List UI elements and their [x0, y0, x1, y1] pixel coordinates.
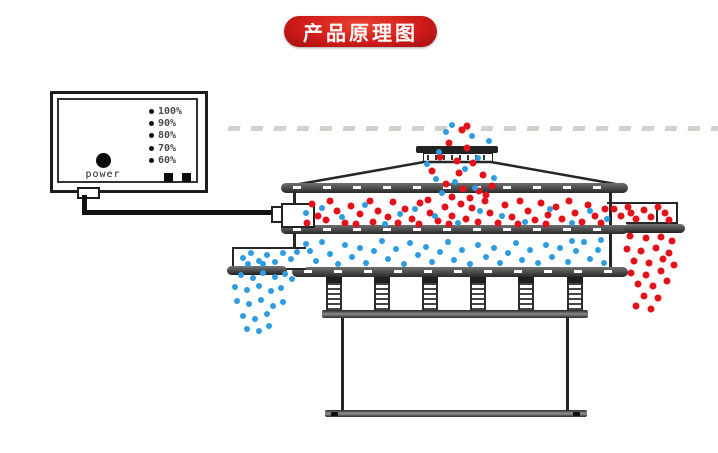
lower-chamber-fine-particle [505, 250, 511, 256]
inlet-stream-coarse-particle [467, 195, 474, 202]
clamp-band-top [281, 183, 628, 193]
spring-coil [518, 283, 534, 310]
upper-chamber-coarse-particle [538, 200, 545, 207]
base-wall-right [566, 318, 569, 410]
upper-chamber-fine-particle [587, 208, 593, 214]
lower-sieve-wall-right [609, 233, 612, 268]
fines-discharge-fine-particle [244, 287, 250, 293]
upper-chamber-coarse-particle [525, 208, 532, 215]
level-label: 90% [158, 118, 176, 129]
spring-coil [374, 283, 390, 310]
lower-chamber-fine-particle [557, 245, 563, 251]
indicator-square [164, 173, 173, 182]
spring-coil [470, 283, 486, 310]
oversize-discharge-coarse-particle [666, 250, 673, 257]
upper-chamber-coarse-particle [334, 208, 341, 215]
indicator-squares [164, 173, 191, 182]
inlet-stream-fine-particle [486, 138, 492, 144]
lower-chamber-fine-particle [437, 249, 443, 255]
support-spring [567, 277, 583, 310]
oversize-discharge-coarse-particle [628, 270, 635, 277]
upper-chamber-coarse-particle [566, 198, 573, 205]
oversize-discharge-coarse-particle [660, 256, 667, 263]
upper-chamber-coarse-particle [427, 210, 434, 217]
lower-chamber-fine-particle [313, 258, 319, 264]
lower-chamber-fine-particle [415, 252, 421, 258]
lower-chamber-fine-particle [342, 242, 348, 248]
upper-chamber-coarse-particle [458, 201, 465, 208]
upper-chamber-coarse-particle [417, 200, 424, 207]
lower-chamber-fine-particle [595, 247, 601, 253]
title-banner: 产品原理图 [284, 16, 437, 47]
oversize-discharge-coarse-particle [658, 268, 665, 275]
oversize-discharge-coarse-particle [671, 262, 678, 269]
fines-discharge-fine-particle [258, 297, 264, 303]
upper-chamber-coarse-particle [435, 218, 442, 225]
level-row: 60% [149, 156, 201, 166]
lower-chamber-fine-particle [483, 254, 489, 260]
lower-chamber-fine-particle [569, 238, 575, 244]
upper-chamber-coarse-particle [409, 216, 416, 223]
fines-discharge-fine-particle [252, 316, 258, 322]
level-label: 60% [158, 155, 176, 166]
upper-chamber-coarse-particle [482, 198, 489, 205]
clamp-band-middle [281, 225, 628, 234]
lower-chamber-fine-particle [371, 248, 377, 254]
clamp-band-bottom [292, 267, 628, 277]
upper-chamber-coarse-particle [502, 202, 509, 209]
oversize-discharge-coarse-particle [627, 233, 634, 240]
lower-chamber-fine-particle [543, 242, 549, 248]
oversize-outlet-spout [607, 202, 678, 204]
support-spring [374, 277, 390, 310]
transducer-connector [281, 203, 315, 228]
upper-chamber-coarse-particle [487, 210, 494, 217]
oversize-discharge-coarse-particle [646, 260, 653, 267]
fines-discharge-fine-particle [264, 311, 270, 317]
feed-inlet-cap [416, 146, 498, 153]
upper-chamber-fine-particle [339, 214, 345, 220]
lower-chamber-fine-particle [429, 259, 435, 265]
oversize-spout-coarse-particle [628, 210, 635, 217]
upper-chamber-coarse-particle [532, 217, 539, 224]
indicator-square [182, 173, 191, 182]
ultrasonic-control-box: power 100%90%80%70%60% [50, 91, 208, 193]
support-spring [518, 277, 534, 310]
fines-discharge-fine-particle [234, 298, 240, 304]
oversize-discharge-coarse-particle [631, 258, 638, 265]
level-bullet-icon [149, 158, 154, 163]
level-bullet-icon [149, 146, 154, 151]
support-spring [470, 277, 486, 310]
oversize-discharge-coarse-particle [664, 278, 671, 285]
lower-chamber-fine-particle [423, 244, 429, 250]
oversize-discharge-coarse-particle [648, 306, 655, 313]
power-label: power [73, 169, 133, 180]
level-label: 80% [158, 130, 176, 141]
lower-chamber-fine-particle [385, 256, 391, 262]
upper-chamber-fine-particle [412, 206, 418, 212]
upper-chamber-coarse-particle [357, 211, 364, 218]
upper-chamber-coarse-particle [323, 217, 330, 224]
spring-coil [567, 283, 583, 310]
fines-discharge-fine-particle [246, 301, 252, 307]
oversize-discharge-coarse-particle [643, 235, 650, 242]
lower-chamber-fine-particle [475, 242, 481, 248]
oversize-discharge-coarse-particle [650, 283, 657, 290]
fines-discharge-fine-particle [280, 299, 286, 305]
oversize-spout-coarse-particle [648, 214, 655, 221]
oversize-discharge-coarse-particle [635, 281, 642, 288]
inlet-stream-coarse-particle [449, 194, 456, 201]
upper-chamber-coarse-particle [442, 204, 449, 211]
base-wall-left [341, 318, 344, 410]
lower-chamber-fine-particle [535, 260, 541, 266]
fines-discharge-fine-particle [266, 323, 272, 329]
inlet-stream-fine-particle [469, 133, 475, 139]
lower-chamber-fine-particle [513, 240, 519, 246]
upper-chamber-coarse-particle [469, 205, 476, 212]
lower-chamber-fine-particle [451, 257, 457, 263]
fines-discharge-fine-particle [250, 275, 256, 281]
lower-chamber-fine-particle [587, 256, 593, 262]
level-row: 70% [149, 143, 201, 153]
oversize-discharge-coarse-particle [669, 238, 676, 245]
lower-chamber-fine-particle [549, 254, 555, 260]
upper-chamber-coarse-particle [572, 210, 579, 217]
lower-chamber-fine-particle [497, 260, 503, 266]
upper-chamber-coarse-particle [367, 198, 374, 205]
fines-discharge-fine-particle [268, 288, 274, 294]
upper-chamber-coarse-particle [449, 213, 456, 220]
lower-chamber-fine-particle [379, 238, 385, 244]
fines-discharge-fine-particle [289, 276, 295, 282]
upper-chamber-coarse-particle [602, 206, 609, 213]
fines-discharge-fine-particle [256, 283, 262, 289]
lower-chamber-fine-particle [327, 251, 333, 257]
upper-chamber-coarse-particle [463, 216, 470, 223]
upper-chamber-coarse-particle [315, 213, 322, 220]
lower-chamber-fine-particle [349, 254, 355, 260]
oversize-discharge-coarse-particle [633, 303, 640, 310]
oversize-outlet-rim [624, 224, 685, 233]
lower-chamber-fine-particle [393, 246, 399, 252]
base-plate [322, 310, 588, 318]
oversize-discharge-coarse-particle [624, 246, 631, 253]
level-bullet-icon [149, 121, 154, 126]
oversize-discharge-coarse-particle [643, 272, 650, 279]
level-bullet-icon [149, 109, 154, 114]
lower-chamber-fine-particle [307, 248, 313, 254]
base-foot-right [573, 412, 580, 416]
lower-chamber-fine-particle [573, 248, 579, 254]
oversize-spout-coarse-particle [641, 207, 648, 214]
upper-chamber-coarse-particle [559, 216, 566, 223]
fines-discharge-fine-particle [232, 284, 238, 290]
upper-chamber-fine-particle [397, 211, 403, 217]
upper-chamber-fine-particle [319, 205, 325, 211]
base-bottom-plate [325, 410, 587, 417]
level-list: 100%90%80%70%60% [149, 106, 201, 166]
oversize-discharge-coarse-particle [655, 295, 662, 302]
level-bullet-icon [149, 133, 154, 138]
oversize-discharge-coarse-particle [658, 234, 665, 241]
level-row: 100% [149, 106, 201, 116]
level-label: 100% [158, 106, 182, 117]
fines-discharge-fine-particle [278, 285, 284, 291]
oversize-outlet-end [676, 202, 678, 224]
lower-chamber-fine-particle [407, 240, 413, 246]
oversize-outlet-flange [656, 204, 658, 222]
lower-chamber-fine-particle [459, 247, 465, 253]
lower-chamber-fine-particle [565, 259, 571, 265]
lower-chamber-fine-particle [581, 239, 587, 245]
lower-chamber-fine-particle [601, 260, 607, 266]
oversize-spout-coarse-particle [618, 213, 625, 220]
oversize-discharge-coarse-particle [638, 248, 645, 255]
control-box-inner-frame: power 100%90%80%70%60% [57, 98, 198, 183]
fines-discharge-fine-particle [244, 326, 250, 332]
fines-discharge-fine-particle [270, 303, 276, 309]
upper-chamber-coarse-particle [585, 202, 592, 209]
support-spring [326, 277, 342, 310]
lower-chamber-fine-particle [363, 260, 369, 266]
lower-chamber-fine-particle [527, 247, 533, 253]
title-banner-label: 产品原理图 [303, 17, 418, 46]
level-row: 90% [149, 118, 201, 128]
upper-chamber-coarse-particle [509, 214, 516, 221]
upper-chamber-coarse-particle [592, 213, 599, 220]
upper-chamber-coarse-particle [327, 198, 334, 205]
product-principle-diagram: 产品原理图 power 100%90%80%70%60% [0, 0, 718, 453]
upper-chamber-coarse-particle [517, 198, 524, 205]
level-label: 70% [158, 143, 176, 154]
upper-chamber-fine-particle [477, 208, 483, 214]
oversize-spout-coarse-particle [662, 210, 669, 217]
control-box-cable-stub [77, 187, 100, 199]
upper-chamber-coarse-particle [375, 208, 382, 215]
lower-chamber-fine-particle [319, 239, 325, 245]
upper-chamber-fine-particle [362, 202, 368, 208]
fines-discharge-fine-particle [256, 328, 262, 334]
upper-chamber-fine-particle [432, 213, 438, 219]
upper-chamber-coarse-particle [348, 203, 355, 210]
watermark-dashes [227, 126, 718, 131]
upper-chamber-coarse-particle [425, 197, 432, 204]
upper-chamber-fine-particle [547, 206, 553, 212]
power-button [96, 153, 111, 168]
upper-chamber-coarse-particle [545, 212, 552, 219]
lower-chamber-fine-particle [519, 257, 525, 263]
lower-chamber-fine-particle [357, 245, 363, 251]
oversize-discharge-coarse-particle [641, 293, 648, 300]
power-cable-horizontal [82, 210, 273, 215]
lower-chamber-fine-particle [598, 237, 604, 243]
oversize-spout-coarse-particle [625, 204, 632, 211]
upper-chamber-coarse-particle [385, 214, 392, 221]
lower-chamber-fine-particle [445, 239, 451, 245]
fines-discharge-fine-particle [240, 313, 246, 319]
lower-chamber-fine-particle [491, 245, 497, 251]
level-row: 80% [149, 131, 201, 141]
upper-chamber-coarse-particle [402, 206, 409, 213]
upper-chamber-coarse-particle [390, 199, 397, 206]
upper-chamber-coarse-particle [553, 204, 560, 211]
support-spring [422, 277, 438, 310]
base-foot-left [331, 412, 338, 416]
fines-outlet-rim [227, 266, 287, 275]
upper-sieve-wall-right [609, 192, 612, 226]
spring-coil [422, 283, 438, 310]
upper-chamber-fine-particle [499, 213, 505, 219]
spring-coil [326, 283, 342, 310]
oversize-discharge-coarse-particle [653, 245, 660, 252]
